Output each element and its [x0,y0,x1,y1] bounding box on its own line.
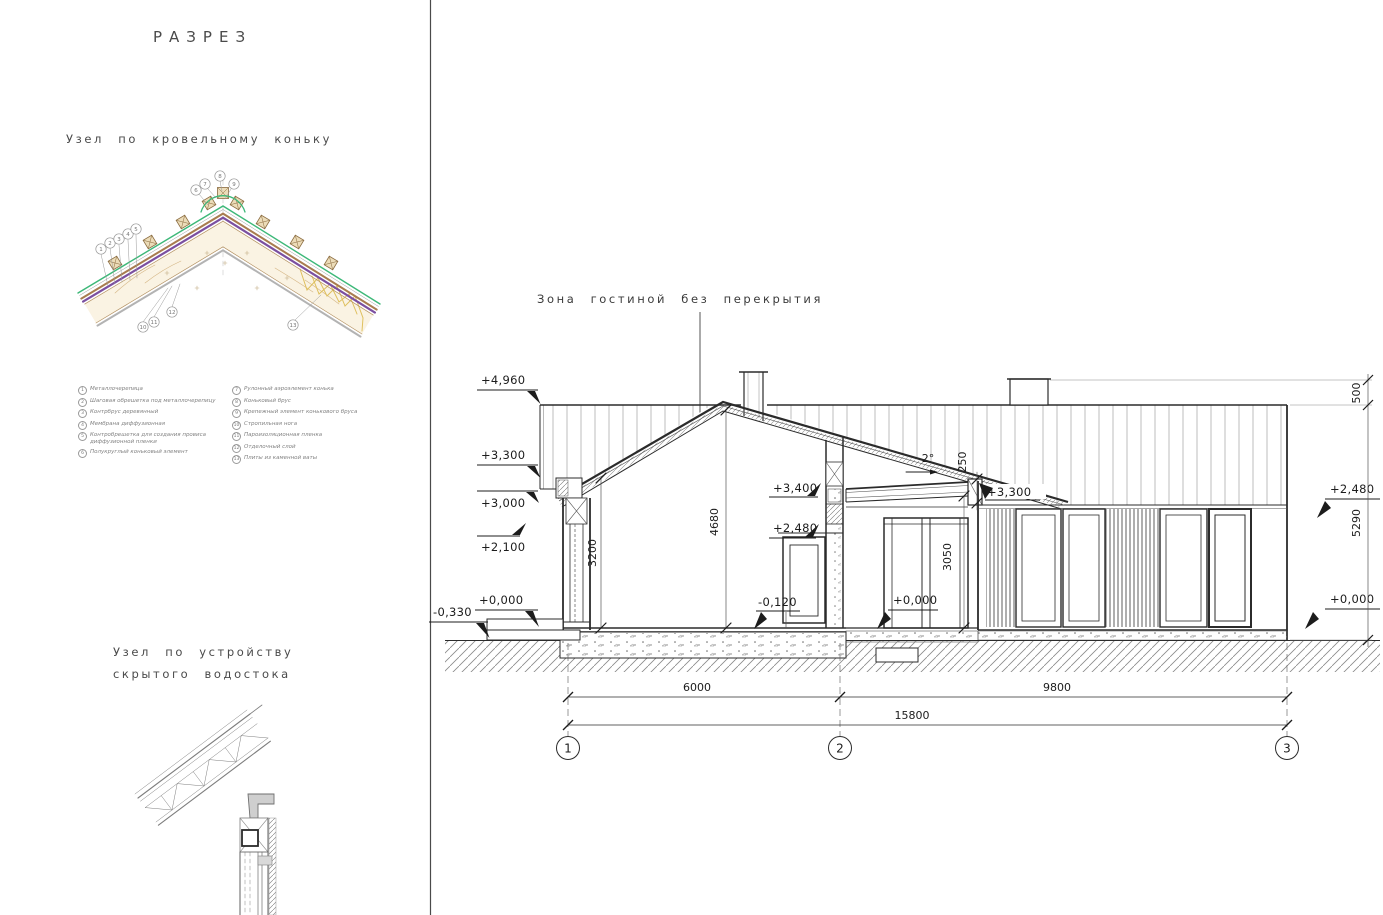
callout-13: 13 [290,323,297,329]
roof-vent [1007,379,1051,405]
elevation-value: +2,100 [481,540,525,554]
dim-right-total: 5290 [1350,509,1363,537]
drawing-sheet: РАЗРЕЗ Узел по кровельному коньку Узел п… [0,0,1383,915]
axis-number: 2 [836,742,844,756]
elevation-value: +3,000 [481,496,525,510]
callout-9: 9 [232,182,236,188]
elevation-marker: +3,300 [477,448,541,478]
downpipe-section [242,830,258,846]
dim-ridge-height: 4680 [708,508,721,536]
elevation-value: +0,000 [479,593,523,607]
elevation-markers-left: +4,960 +3,300 +3,000 +2,100 [429,373,541,638]
entry-step [487,630,580,640]
elevation-value: +4,960 [481,373,525,387]
callout-8: 8 [218,174,222,180]
dim-flat-height: 3050 [941,543,954,571]
axis-number: 3 [1283,742,1291,756]
elevation-marker: +3,300 [979,483,1046,500]
callout-7: 7 [203,182,207,188]
axis-number: 1 [564,742,572,756]
callout-3: 3 [117,237,121,243]
elevation-marker: +0,000 [1305,592,1380,629]
elevation-marker: +2,480 [769,521,819,538]
slat-panel [986,509,1016,627]
dim-span-total: 15800 [895,709,930,722]
elevation-value: +3,300 [987,485,1031,499]
drawing-canvas: 1 2 3 4 5 6 7 8 9 10 11 12 13 [0,0,1383,915]
elevation-marker: +2,100 [477,523,526,554]
dim-slope: 2° [922,452,935,465]
elevation-value: -0,120 [758,595,797,609]
annotation-living-zone: Зона гостиной без перекрытия [537,292,823,306]
callout-10: 10 [140,325,147,331]
dim-wall-height: 3200 [586,539,599,567]
callout-11: 11 [151,320,158,326]
axis-bubble-2: 2 [829,737,852,760]
foundation-pad [876,648,918,662]
callout-2: 2 [108,241,112,247]
callout-6: 6 [194,188,198,194]
foundation-slab [561,633,845,657]
elevation-value: +3,300 [481,448,525,462]
elevation-marker: +3,000 [477,491,539,510]
dim-span-1-2: 6000 [683,681,711,694]
entry-step [487,619,563,630]
dim-span-2-3: 9800 [1043,681,1071,694]
building-section: Зона гостиной без перекрытия [429,292,1380,760]
callout-5: 5 [134,227,138,233]
elevation-marker: +2,480 [1317,482,1380,518]
elevation-value: -0,330 [433,605,472,619]
callout-1: 1 [99,247,103,253]
gutter-detail-drawing [135,705,276,915]
dim-roof-thickness: 250 [956,452,969,473]
elevation-marker: +3,400 [769,481,821,497]
axis-bubble-3: 3 [1276,737,1299,760]
hidden-gutter-bracket [248,794,274,818]
ridge-detail-drawing: 1 2 3 4 5 6 7 8 9 10 11 12 13 [78,171,380,337]
dim-parapet: 500 [1350,383,1363,404]
axis-bubble-1: 1 [557,737,580,760]
flat-bay-window [884,518,968,628]
elevation-value: +0,000 [893,593,937,607]
facade-plinth [978,631,1287,640]
callout-12: 12 [169,310,176,316]
callout-4: 4 [126,232,130,238]
slat-panel [1105,509,1160,627]
elevation-marker: +4,960 [477,373,541,404]
